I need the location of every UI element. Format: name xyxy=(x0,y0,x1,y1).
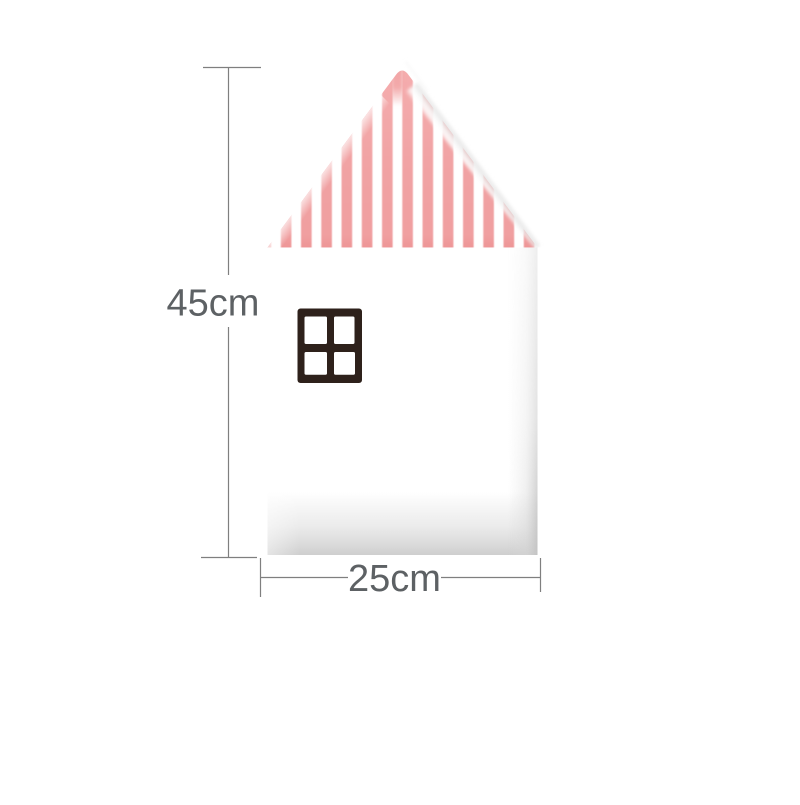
svg-text:25cm: 25cm xyxy=(348,558,441,600)
svg-text:45cm: 45cm xyxy=(167,283,260,325)
